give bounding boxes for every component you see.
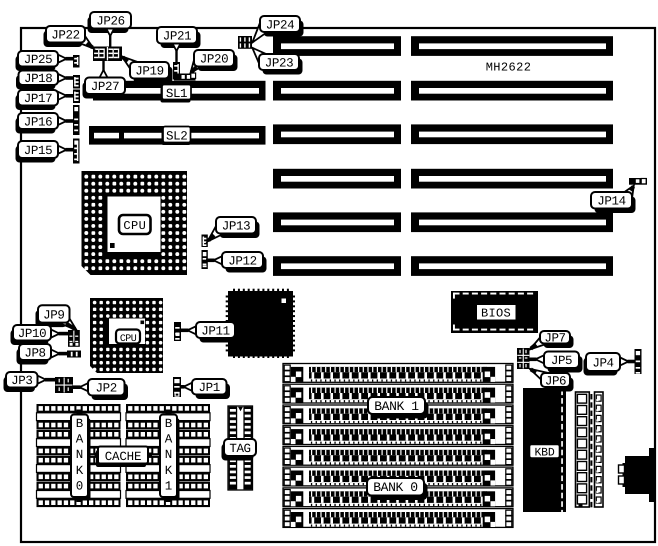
- svg-text:JP12: JP12: [228, 254, 256, 268]
- svg-text:BIOS: BIOS: [481, 307, 511, 321]
- svg-text:SL2: SL2: [166, 130, 187, 144]
- svg-text:JP25: JP25: [24, 53, 52, 67]
- svg-text:JP26: JP26: [96, 15, 124, 29]
- svg-text:N: N: [165, 448, 173, 462]
- svg-text:JP24: JP24: [266, 18, 294, 32]
- svg-text:CACHE: CACHE: [105, 450, 142, 464]
- svg-text:JP11: JP11: [201, 324, 229, 338]
- svg-text:1: 1: [165, 479, 173, 493]
- svg-text:SL1: SL1: [166, 87, 187, 101]
- svg-text:N: N: [76, 448, 84, 462]
- svg-text:B: B: [165, 417, 173, 431]
- svg-text:JP14: JP14: [597, 195, 625, 209]
- svg-text:KBD: KBD: [534, 446, 554, 459]
- svg-text:0: 0: [76, 479, 84, 493]
- svg-text:JP19: JP19: [135, 65, 163, 79]
- svg-text:B: B: [76, 417, 84, 431]
- svg-text:TAG: TAG: [229, 442, 250, 456]
- svg-text:K: K: [165, 464, 173, 478]
- svg-text:JP23: JP23: [265, 56, 293, 70]
- svg-text:JP1: JP1: [199, 381, 220, 395]
- svg-text:A: A: [76, 433, 84, 447]
- svg-text:CPU: CPU: [123, 219, 146, 233]
- svg-text:BANK 0: BANK 0: [373, 480, 417, 495]
- svg-text:JP17: JP17: [24, 92, 52, 106]
- svg-text:JP27: JP27: [91, 80, 119, 94]
- svg-text:BANK 1: BANK 1: [374, 399, 419, 414]
- svg-text:JP20: JP20: [200, 53, 228, 67]
- svg-text:K: K: [76, 464, 84, 478]
- svg-text:JP13: JP13: [222, 220, 250, 234]
- svg-text:JP18: JP18: [24, 72, 52, 86]
- svg-text:JP6: JP6: [545, 374, 566, 388]
- svg-text:JP7: JP7: [544, 332, 565, 346]
- svg-text:MH2622: MH2622: [486, 61, 532, 75]
- svg-text:CPU: CPU: [120, 334, 137, 345]
- svg-text:JP22: JP22: [51, 29, 79, 43]
- svg-text:JP15: JP15: [24, 144, 52, 158]
- svg-text:JP4: JP4: [592, 356, 613, 370]
- svg-text:JP21: JP21: [163, 30, 191, 44]
- svg-text:JP2: JP2: [96, 382, 117, 396]
- svg-text:JP5: JP5: [551, 354, 572, 368]
- svg-text:JP16: JP16: [24, 115, 52, 129]
- svg-text:JP8: JP8: [24, 346, 45, 360]
- svg-text:JP10: JP10: [18, 327, 46, 341]
- svg-text:JP3: JP3: [11, 374, 32, 388]
- svg-text:JP9: JP9: [43, 308, 64, 322]
- svg-text:A: A: [165, 433, 173, 447]
